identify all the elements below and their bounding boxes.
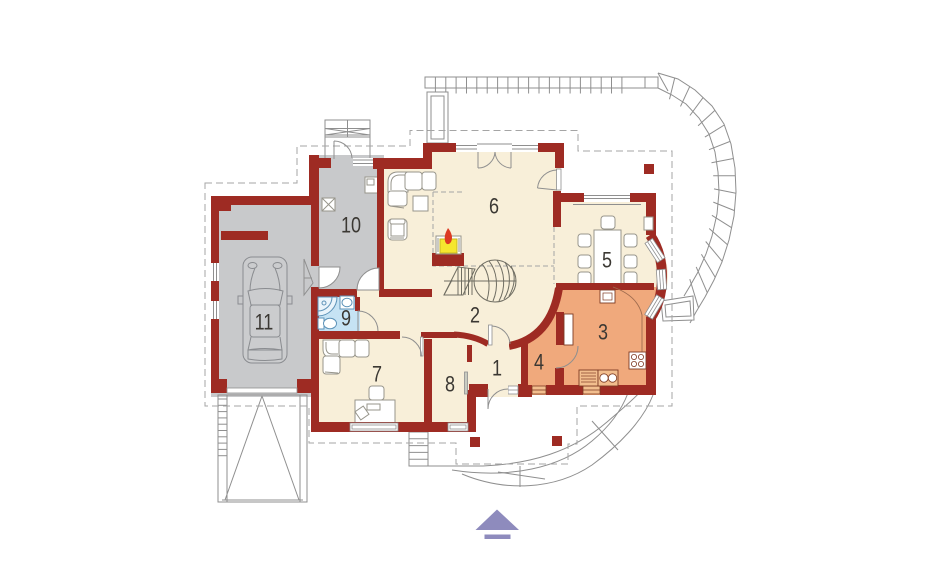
svg-text:2: 2 <box>470 304 480 328</box>
svg-text:8: 8 <box>445 373 455 397</box>
svg-text:4: 4 <box>534 351 544 375</box>
svg-text:6: 6 <box>489 195 499 219</box>
svg-text:11: 11 <box>255 311 274 335</box>
svg-text:10: 10 <box>341 214 361 238</box>
svg-text:7: 7 <box>372 363 382 387</box>
svg-text:3: 3 <box>598 321 608 345</box>
svg-text:9: 9 <box>341 307 351 331</box>
svg-text:1: 1 <box>492 357 502 381</box>
svg-text:5: 5 <box>602 249 612 273</box>
